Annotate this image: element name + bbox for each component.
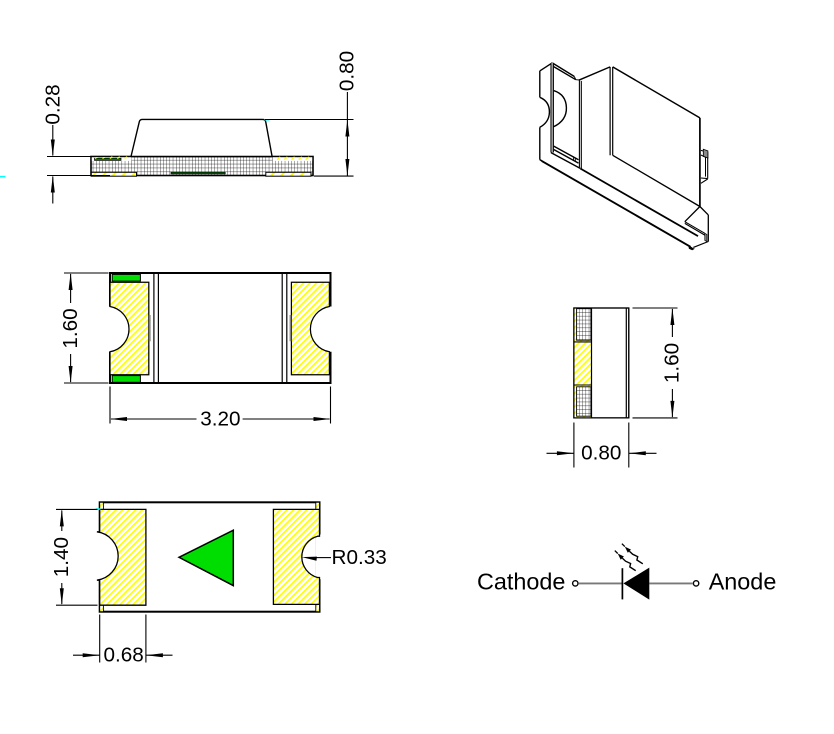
svg-text:R0.33: R0.33 xyxy=(332,546,387,569)
svg-text:1.60: 1.60 xyxy=(661,343,684,383)
svg-text:Cathode: Cathode xyxy=(477,568,565,594)
svg-text:3.20: 3.20 xyxy=(200,408,240,431)
svg-text:0.28: 0.28 xyxy=(42,84,65,124)
svg-text:0.68: 0.68 xyxy=(103,643,143,666)
svg-text:Anode: Anode xyxy=(709,568,777,594)
svg-text:0.80: 0.80 xyxy=(336,51,359,91)
svg-text:1.60: 1.60 xyxy=(59,308,82,348)
svg-text:1.40: 1.40 xyxy=(50,537,73,577)
svg-text:0.80: 0.80 xyxy=(581,441,621,464)
